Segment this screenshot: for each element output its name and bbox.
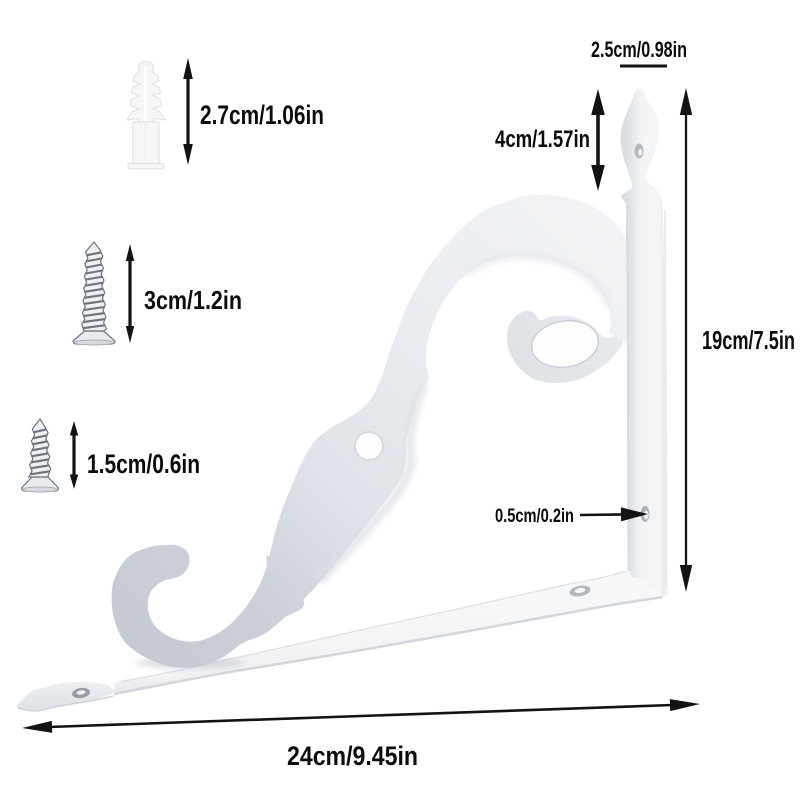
svg-text:1.5cm/0.6in: 1.5cm/0.6in xyxy=(87,449,200,479)
svg-text:24cm/9.45in: 24cm/9.45in xyxy=(287,741,418,771)
svg-text:0.5cm/0.2in: 0.5cm/0.2in xyxy=(495,506,574,527)
svg-text:2.7cm/1.06in: 2.7cm/1.06in xyxy=(200,100,324,130)
svg-text:19cm/7.5in: 19cm/7.5in xyxy=(702,325,795,355)
svg-text:4cm/1.57in: 4cm/1.57in xyxy=(495,126,590,153)
svg-text:3cm/1.2in: 3cm/1.2in xyxy=(144,285,242,315)
svg-text:2.5cm/0.98in: 2.5cm/0.98in xyxy=(591,37,687,62)
